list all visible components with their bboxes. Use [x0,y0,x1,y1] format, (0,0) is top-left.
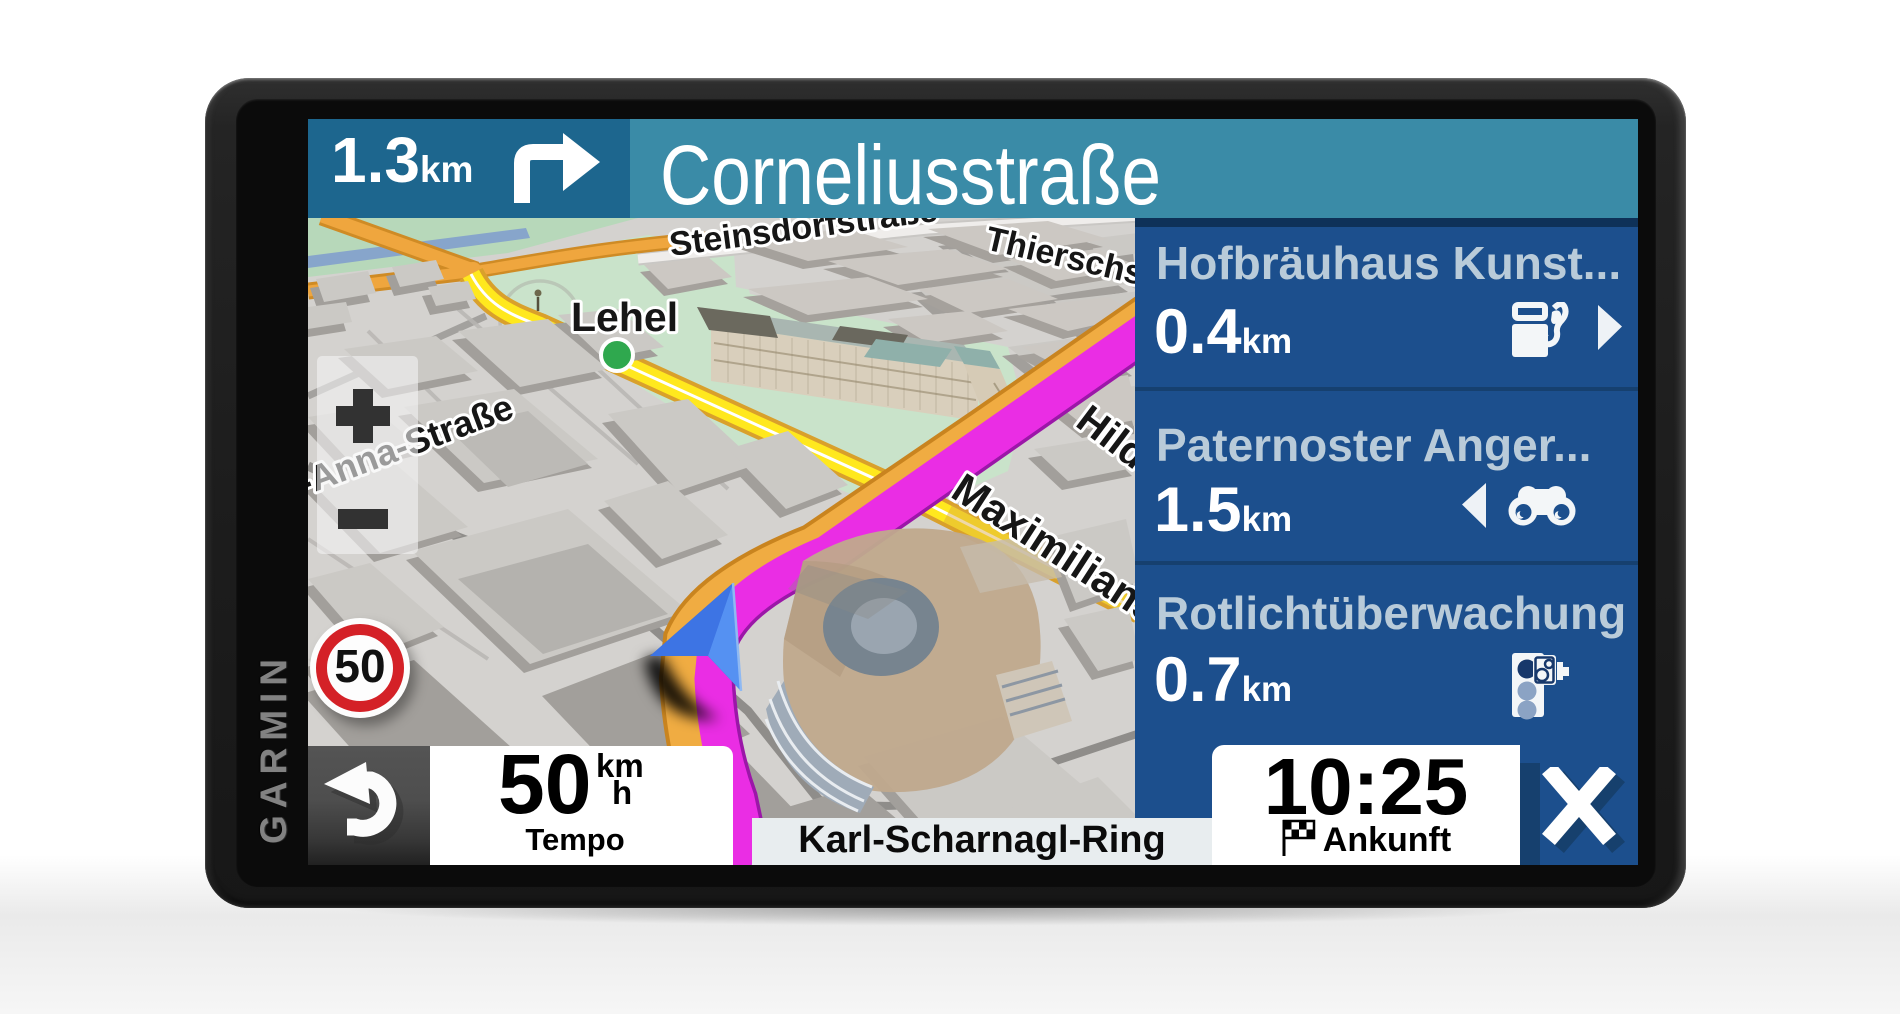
svg-text:Lehel: Lehel [571,294,678,340]
